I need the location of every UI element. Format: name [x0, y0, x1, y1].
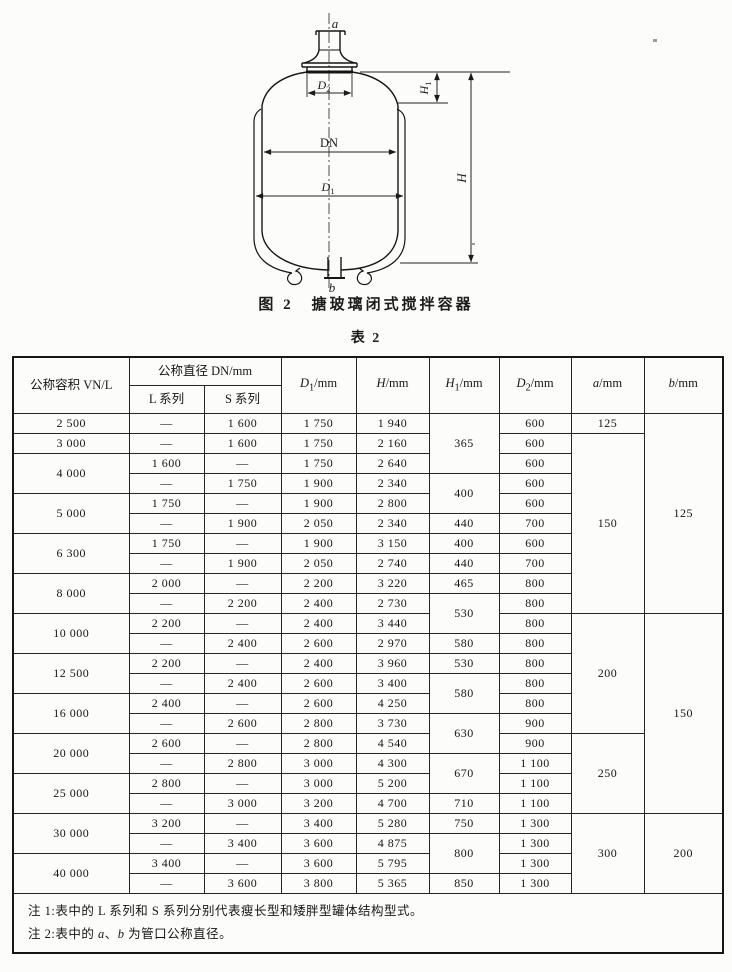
table-cell: 2 600: [129, 734, 204, 754]
table-cell: 900: [499, 734, 571, 754]
table-cell: —: [129, 474, 204, 494]
col-header-a: a/mm: [571, 357, 644, 414]
table-cell: 4 300: [356, 754, 429, 774]
table-cell: 580: [429, 634, 499, 654]
table-cell: —: [204, 454, 281, 474]
table-cell: 900: [499, 714, 571, 734]
header-unit: /mm: [386, 376, 409, 390]
table-cell: 2 400: [281, 654, 356, 674]
table-cell: —: [129, 634, 204, 654]
table-cell: 630: [429, 714, 499, 754]
figure-caption: 图 2 搪玻璃闭式搅拌容器: [0, 295, 732, 315]
top-nozzle: [302, 31, 357, 72]
table-cell: 2 400: [129, 694, 204, 714]
table-cell: 1 900: [281, 474, 356, 494]
table-cell: 1 750: [129, 494, 204, 514]
table-cell: 1 300: [499, 854, 571, 874]
table-cell: 1 750: [281, 414, 356, 434]
table-cell: 3 200: [129, 814, 204, 834]
table-cell: 25 000: [13, 774, 129, 814]
col-header-d2: D2/mm: [499, 357, 571, 414]
table-cell: 2 400: [204, 674, 281, 694]
table-cell: 2 400: [281, 594, 356, 614]
table-cell: 1 600: [204, 414, 281, 434]
table-cell: 3 220: [356, 574, 429, 594]
table-cell: 1 900: [281, 534, 356, 554]
table-cell: 700: [499, 554, 571, 574]
header-unit: /mm: [460, 376, 483, 390]
table-cell: 530: [429, 654, 499, 674]
vessel-body: [254, 72, 405, 285]
label-nozzle-a: a: [332, 16, 339, 31]
table-cell: 3 800: [281, 874, 356, 894]
col-header-l-series: L 系列: [129, 386, 204, 414]
table-cell: 8 000: [13, 574, 129, 614]
table-row: 30 0003 200—3 4005 2807501 300300200: [13, 814, 723, 834]
table-cell: 600: [499, 534, 571, 554]
header-unit: /mm: [675, 376, 698, 390]
table-note-1: 注 1:表中的 L 系列和 S 系列分别代表瘦长型和矮胖型罐体结构型式。: [28, 900, 716, 923]
table-cell: 800: [499, 694, 571, 714]
label-h1: H1: [417, 82, 433, 96]
table-cell: 1 900: [281, 494, 356, 514]
table-cell: 2 400: [204, 634, 281, 654]
table-cell: 600: [499, 494, 571, 514]
table-cell: 440: [429, 554, 499, 574]
table-cell: 800: [499, 654, 571, 674]
table-cell: 150: [571, 434, 644, 614]
label-dn: DN: [320, 136, 338, 150]
label-h: H: [454, 173, 469, 184]
table-cell: —: [204, 574, 281, 594]
vessel-diagram: a b D2 DN D1 H1 H: [228, 0, 528, 296]
table-cell: 5 200: [356, 774, 429, 794]
table-cell: —: [129, 874, 204, 894]
scan-speck: [653, 39, 657, 42]
table-cell: 2 800: [129, 774, 204, 794]
spec-table-body: 2 500—1 6001 7501 9403656001251253 000—1…: [13, 414, 723, 894]
table-cell: 1 940: [356, 414, 429, 434]
table-cell: 1 750: [204, 474, 281, 494]
table-cell: 20 000: [13, 734, 129, 774]
table-cell: 250: [571, 734, 644, 814]
table-cell: 1 900: [204, 514, 281, 534]
table-cell: 12 500: [13, 654, 129, 694]
table-cell: —: [204, 534, 281, 554]
col-header-h: H/mm: [356, 357, 429, 414]
table-cell: 2 600: [281, 634, 356, 654]
table-cell: 3 400: [129, 854, 204, 874]
table-cell: 3 600: [204, 874, 281, 894]
table-cell: 2 340: [356, 514, 429, 534]
table-cell: 4 000: [13, 454, 129, 494]
table-cell: —: [204, 854, 281, 874]
table-cell: —: [129, 434, 204, 454]
header-row-1: 公称容积 VN/L 公称直径 DN/mm D1/mm H/mm H1/mm D2…: [13, 357, 723, 386]
table-row: 3 000—1 6001 7502 160600150: [13, 434, 723, 454]
table-title: 表 2: [0, 330, 732, 348]
col-header-h1: H1/mm: [429, 357, 499, 414]
table-cell: 800: [499, 594, 571, 614]
notes-row: 注 1:表中的 L 系列和 S 系列分别代表瘦长型和矮胖型罐体结构型式。 注 2…: [13, 894, 723, 954]
table-cell: 400: [429, 534, 499, 554]
table-cell: 2 500: [13, 414, 129, 434]
table-cell: 2 800: [281, 734, 356, 754]
table-cell: 4 250: [356, 694, 429, 714]
table-cell: 800: [499, 574, 571, 594]
table-cell: 3 400: [281, 814, 356, 834]
table-cell: 600: [499, 434, 571, 454]
table-cell: 1 100: [499, 754, 571, 774]
table-cell: 2 740: [356, 554, 429, 574]
table-cell: 3 000: [281, 774, 356, 794]
table-cell: 2 640: [356, 454, 429, 474]
table-note-2: 注 2:表中的 a、b 为管口公称直径。: [28, 923, 716, 946]
table-cell: 40 000: [13, 854, 129, 894]
table-cell: 600: [499, 454, 571, 474]
table-cell: 1 600: [129, 454, 204, 474]
col-header-d1: D1/mm: [281, 357, 356, 414]
table-cell: 670: [429, 754, 499, 794]
table-cell: 3 000: [204, 794, 281, 814]
table-row: 10 0002 200—2 4003 440800200150: [13, 614, 723, 634]
table-cell: 1 900: [204, 554, 281, 574]
table-cell: 10 000: [13, 614, 129, 654]
table-cell: 5 365: [356, 874, 429, 894]
table-cell: 2 050: [281, 514, 356, 534]
table-cell: 1 750: [129, 534, 204, 554]
table-cell: 700: [499, 514, 571, 534]
table-cell: 1 600: [204, 434, 281, 454]
table-cell: 3 150: [356, 534, 429, 554]
table-cell: 3 400: [356, 674, 429, 694]
table-cell: 4 700: [356, 794, 429, 814]
table-cell: 3 600: [281, 854, 356, 874]
table-cell: 2 200: [129, 614, 204, 634]
table-cell: 1 750: [281, 454, 356, 474]
table-cell: 800: [499, 634, 571, 654]
note-text: 注 2:表中的: [28, 927, 98, 941]
table-cell: 800: [499, 614, 571, 634]
table-cell: —: [129, 834, 204, 854]
table-cell: 2 800: [204, 754, 281, 774]
table-notes: 注 1:表中的 L 系列和 S 系列分别代表瘦长型和矮胖型罐体结构型式。 注 2…: [13, 894, 723, 954]
header-unit: /mm: [599, 376, 622, 390]
col-header-b: b/mm: [644, 357, 723, 414]
note-symbol-a: a: [98, 927, 105, 941]
table-cell: 5 280: [356, 814, 429, 834]
table-cell: 580: [429, 674, 499, 714]
table-row: 20 0002 600—2 8004 540900250: [13, 734, 723, 754]
table-cell: 2 600: [281, 694, 356, 714]
table-cell: 3 730: [356, 714, 429, 734]
table-cell: —: [204, 734, 281, 754]
table-cell: 710: [429, 794, 499, 814]
table-cell: 2 160: [356, 434, 429, 454]
table-cell: 300: [571, 814, 644, 894]
table-cell: —: [204, 654, 281, 674]
table-cell: 850: [429, 874, 499, 894]
label-d2: D2: [317, 78, 331, 94]
table-cell: 125: [644, 414, 723, 614]
table-cell: —: [204, 614, 281, 634]
header-unit: /mm: [531, 376, 554, 390]
scan-speck: [472, 243, 475, 245]
table-cell: 5 000: [13, 494, 129, 534]
table-cell: —: [129, 554, 204, 574]
table-cell: —: [129, 714, 204, 734]
table-cell: 800: [429, 834, 499, 874]
table-cell: 2 050: [281, 554, 356, 574]
table-cell: 2 200: [204, 594, 281, 614]
table-cell: 200: [571, 614, 644, 734]
table-cell: 3 400: [204, 834, 281, 854]
table-cell: 1 300: [499, 834, 571, 854]
table-cell: 1 100: [499, 794, 571, 814]
header-symbol: D: [300, 376, 309, 390]
table-cell: 2 200: [129, 654, 204, 674]
note-text: 为管口公称直径。: [125, 927, 233, 941]
table-cell: 2 200: [281, 574, 356, 594]
table-cell: 2 970: [356, 634, 429, 654]
table-cell: 3 000: [13, 434, 129, 454]
table-cell: 2 800: [356, 494, 429, 514]
table-cell: 600: [499, 474, 571, 494]
table-cell: 5 795: [356, 854, 429, 874]
table-cell: 600: [499, 414, 571, 434]
note-symbol-b: b: [118, 927, 125, 941]
table-cell: 2 000: [129, 574, 204, 594]
label-d1: D1: [321, 180, 335, 196]
table-cell: —: [129, 754, 204, 774]
table-cell: 2 400: [281, 614, 356, 634]
col-header-vn: 公称容积 VN/L: [13, 357, 129, 414]
table-cell: 3 600: [281, 834, 356, 854]
table-cell: 2 600: [204, 714, 281, 734]
label-nozzle-b: b: [329, 280, 336, 295]
table-cell: 200: [644, 814, 723, 894]
spec-table: 公称容积 VN/L 公称直径 DN/mm D1/mm H/mm H1/mm D2…: [12, 356, 724, 954]
table-cell: 530: [429, 594, 499, 634]
header-symbol: H: [377, 376, 386, 390]
table-cell: 2 600: [281, 674, 356, 694]
table-cell: 2 730: [356, 594, 429, 614]
table-cell: 3 200: [281, 794, 356, 814]
table-cell: 1 750: [281, 434, 356, 454]
table-cell: —: [129, 594, 204, 614]
table-row: 2 500—1 6001 7501 940365600125125: [13, 414, 723, 434]
table-cell: 125: [571, 414, 644, 434]
table-cell: 365: [429, 414, 499, 474]
table-cell: —: [129, 414, 204, 434]
table-cell: 4 875: [356, 834, 429, 854]
table-cell: 1 300: [499, 874, 571, 894]
table-cell: —: [129, 514, 204, 534]
table-cell: 30 000: [13, 814, 129, 854]
header-unit: /mm: [314, 376, 337, 390]
table-cell: 4 540: [356, 734, 429, 754]
table-cell: 750: [429, 814, 499, 834]
table-cell: 3 000: [281, 754, 356, 774]
table-cell: 440: [429, 514, 499, 534]
table-cell: 1 300: [499, 814, 571, 834]
document-page: a b D2 DN D1 H1 H 图 2 搪玻璃闭式搅拌容器 表 2 公称容积…: [0, 0, 732, 972]
table-cell: 150: [644, 614, 723, 814]
table-cell: 800: [499, 674, 571, 694]
table-cell: 400: [429, 474, 499, 514]
table-cell: 3 960: [356, 654, 429, 674]
dimension-lines: [256, 72, 510, 263]
table-cell: 3 440: [356, 614, 429, 634]
table-cell: —: [204, 694, 281, 714]
col-header-dn-group: 公称直径 DN/mm: [129, 357, 281, 386]
table-cell: 16 000: [13, 694, 129, 734]
table-cell: —: [204, 494, 281, 514]
table-cell: —: [129, 794, 204, 814]
table-cell: 465: [429, 574, 499, 594]
note-separator: 、: [105, 927, 118, 941]
col-header-s-series: S 系列: [204, 386, 281, 414]
table-cell: —: [204, 814, 281, 834]
table-cell: 2 800: [281, 714, 356, 734]
table-cell: 2 340: [356, 474, 429, 494]
table-cell: 1 100: [499, 774, 571, 794]
table-cell: —: [129, 674, 204, 694]
table-cell: —: [204, 774, 281, 794]
table-cell: 6 300: [13, 534, 129, 574]
